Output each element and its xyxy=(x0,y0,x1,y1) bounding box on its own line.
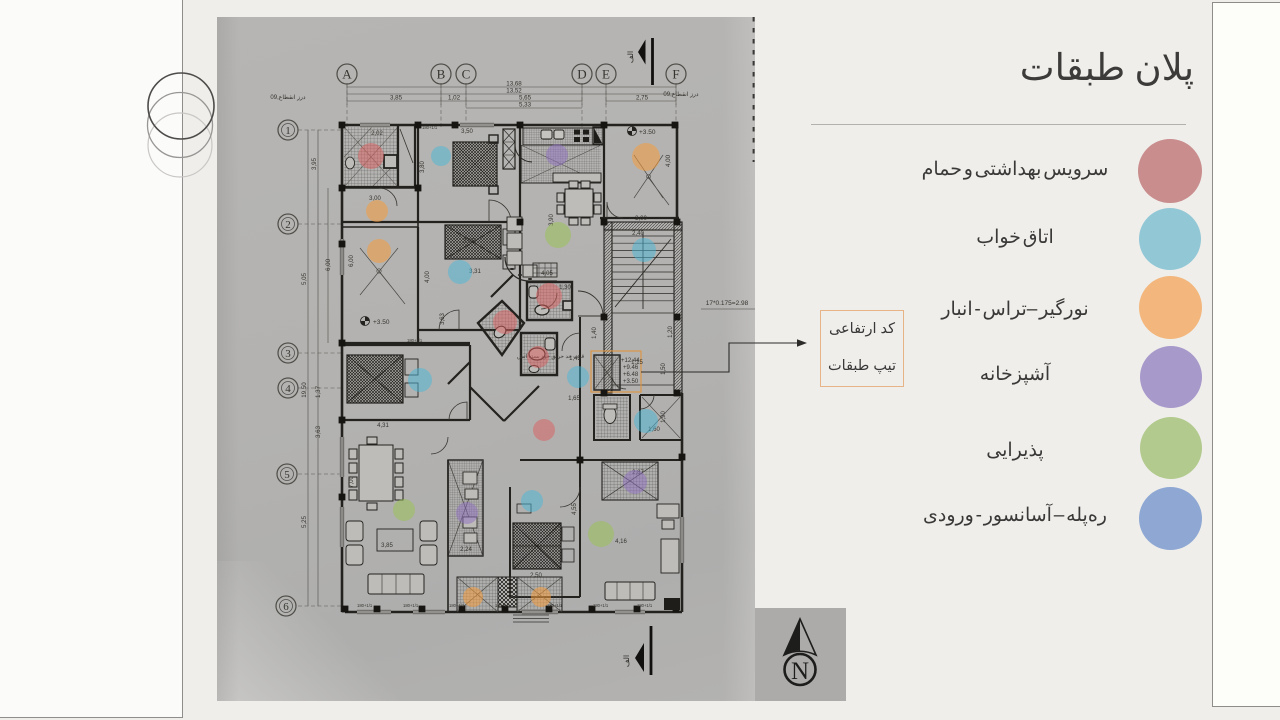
svg-text:4: 4 xyxy=(285,383,291,395)
svg-text:3,50: 3,50 xyxy=(461,129,473,135)
svg-text:13,52: 13,52 xyxy=(506,88,522,95)
svg-text:الف: الف xyxy=(622,655,631,667)
svg-text:3,95: 3,95 xyxy=(311,157,318,170)
svg-text:1,30: 1,30 xyxy=(559,285,571,291)
svg-text:19,50: 19,50 xyxy=(301,382,308,398)
svg-text:الف: الف xyxy=(626,51,635,63)
svg-text:1,40: 1,40 xyxy=(592,327,598,339)
svg-text:1,65: 1,65 xyxy=(568,396,580,402)
svg-text:1,90: 1,90 xyxy=(661,411,667,423)
svg-text:5,65: 5,65 xyxy=(519,95,532,102)
svg-text:180+1/1: 180+1/1 xyxy=(422,125,438,130)
svg-text:6,00: 6,00 xyxy=(325,258,332,271)
svg-text:180+1/1: 180+1/1 xyxy=(637,603,653,608)
svg-text:3,63: 3,63 xyxy=(315,425,322,438)
svg-text:2: 2 xyxy=(285,219,291,231)
svg-text:5,33: 5,33 xyxy=(519,102,532,109)
svg-text:13,68: 13,68 xyxy=(506,81,522,88)
svg-text:3,63: 3,63 xyxy=(440,313,446,325)
svg-text:6: 6 xyxy=(283,601,289,613)
svg-text:2,02: 2,02 xyxy=(371,131,383,137)
svg-text:3,80: 3,80 xyxy=(420,161,426,173)
svg-text:N: N xyxy=(791,658,809,685)
svg-text:A: A xyxy=(342,67,352,82)
svg-text:17*0.175=2.98: 17*0.175=2.98 xyxy=(706,300,749,307)
svg-text:1,37: 1,37 xyxy=(315,385,322,398)
svg-text:7,00: 7,00 xyxy=(349,476,355,488)
svg-text:4,00: 4,00 xyxy=(665,154,672,167)
svg-text:2,40: 2,40 xyxy=(632,231,644,237)
svg-text:2,75: 2,75 xyxy=(636,95,649,102)
svg-text:180+1/1: 180+1/1 xyxy=(495,603,511,608)
svg-text:3,85: 3,85 xyxy=(381,543,393,549)
svg-text:180+1/1: 180+1/1 xyxy=(357,603,373,608)
svg-text:D: D xyxy=(577,67,586,82)
svg-text:C: C xyxy=(462,67,471,82)
svg-text:4,16: 4,16 xyxy=(615,539,627,545)
svg-text:180+1/1: 180+1/1 xyxy=(547,603,563,608)
svg-text:E: E xyxy=(602,67,610,82)
svg-text:درز انقطاع,09: درز انقطاع,09 xyxy=(663,91,699,98)
svg-text:180+1/1: 180+1/1 xyxy=(593,603,609,608)
svg-text:درز انقطاع,09: درز انقطاع,09 xyxy=(270,94,306,101)
svg-text:6,00: 6,00 xyxy=(349,255,355,267)
svg-text:2,24: 2,24 xyxy=(460,547,472,553)
svg-text:F: F xyxy=(672,67,679,82)
svg-text:+3.50: +3.50 xyxy=(373,319,390,326)
svg-text:180+1/1: 180+1/1 xyxy=(449,603,465,608)
svg-text:3,85: 3,85 xyxy=(390,95,403,102)
svg-text:5: 5 xyxy=(284,469,290,481)
svg-text:5,05: 5,05 xyxy=(301,272,308,285)
svg-text:B: B xyxy=(437,67,446,82)
svg-text:1,45: 1,45 xyxy=(569,356,581,362)
svg-text:5,25: 5,25 xyxy=(301,515,308,528)
svg-text:4,31: 4,31 xyxy=(377,423,389,429)
svg-text:180+1/1: 180+1/1 xyxy=(407,338,423,343)
svg-text:4,00: 4,00 xyxy=(425,271,431,283)
svg-text:4,05: 4,05 xyxy=(541,271,553,277)
svg-text:1,02: 1,02 xyxy=(448,95,461,102)
svg-text:1: 1 xyxy=(285,125,291,137)
svg-text:+3.50: +3.50 xyxy=(639,129,656,136)
svg-text:4,55: 4,55 xyxy=(572,503,578,515)
svg-text:2,50: 2,50 xyxy=(530,573,542,579)
svg-text:3,00: 3,00 xyxy=(635,216,647,222)
svg-text:3: 3 xyxy=(285,348,291,360)
svg-text:180+1/1: 180+1/1 xyxy=(403,603,419,608)
svg-text:3,95: 3,95 xyxy=(463,239,475,245)
